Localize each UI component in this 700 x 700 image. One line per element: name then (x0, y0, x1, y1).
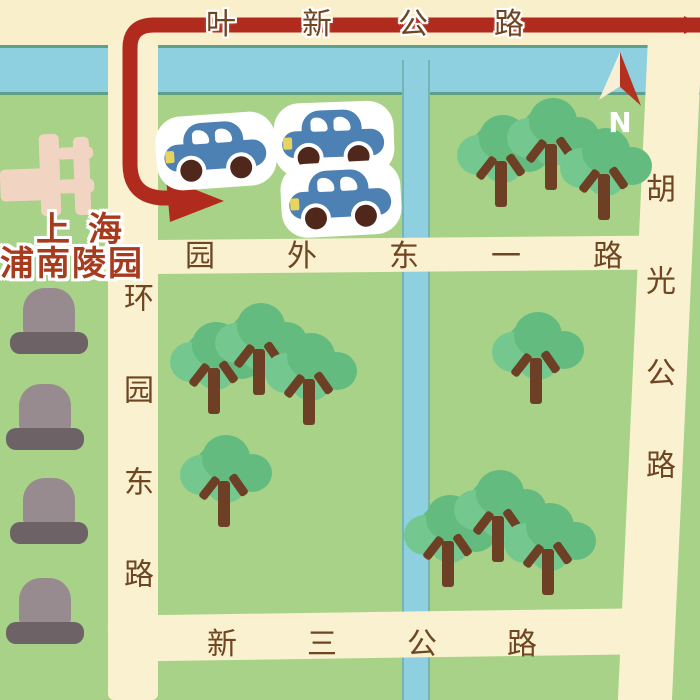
north-arrow: N (598, 52, 642, 138)
cemetery-name-line2: 浦南陵园 (0, 236, 144, 285)
hand-drawn-map: N 叶新公路 园外东一路 新三公路 环园东路 胡光公路 上海 浦南陵园 (0, 0, 700, 700)
tree-trunk (218, 481, 230, 527)
road-label-huguang: 胡光公路 (640, 173, 674, 541)
tree-trunk (303, 379, 315, 425)
road-label-yexin: 叶新公路 (206, 8, 590, 42)
car-headlight (290, 198, 300, 210)
car-headlight (283, 137, 292, 149)
tree-canopy (526, 503, 574, 549)
north-arrow-light-half (599, 52, 620, 104)
tombstone-icon (6, 384, 84, 450)
road-label-xinsan: 新三公路 (207, 628, 607, 662)
tree-trunk (542, 549, 554, 595)
tombstone-icon (6, 578, 84, 644)
tree-icon (178, 435, 270, 531)
tree-icon (558, 128, 650, 224)
tree-canopy (202, 435, 250, 481)
tree-icon (502, 503, 594, 599)
road-label-huanyuan: 环园东路 (118, 282, 152, 650)
tombstone-dome (19, 578, 71, 630)
tombstone-icon (10, 478, 88, 544)
road-label-yuanwai: 园外东一路 (185, 240, 695, 274)
tree-icon (263, 333, 355, 429)
car-headlight (165, 151, 175, 164)
compass-n-label: N (598, 106, 642, 139)
tombstone-dome (19, 384, 71, 436)
tree-icon (490, 312, 582, 408)
tombstone-dome (23, 478, 75, 530)
tree-trunk (530, 358, 542, 404)
tombstone-icon (10, 288, 88, 354)
tree-trunk (545, 144, 557, 190)
north-arrow-red-half (620, 52, 641, 108)
tree-canopy (514, 312, 562, 358)
car-icon (160, 116, 272, 185)
car-icon (285, 165, 396, 233)
tree-canopy (287, 333, 335, 379)
tombstone-dome (23, 288, 75, 340)
tree-trunk (598, 174, 610, 220)
